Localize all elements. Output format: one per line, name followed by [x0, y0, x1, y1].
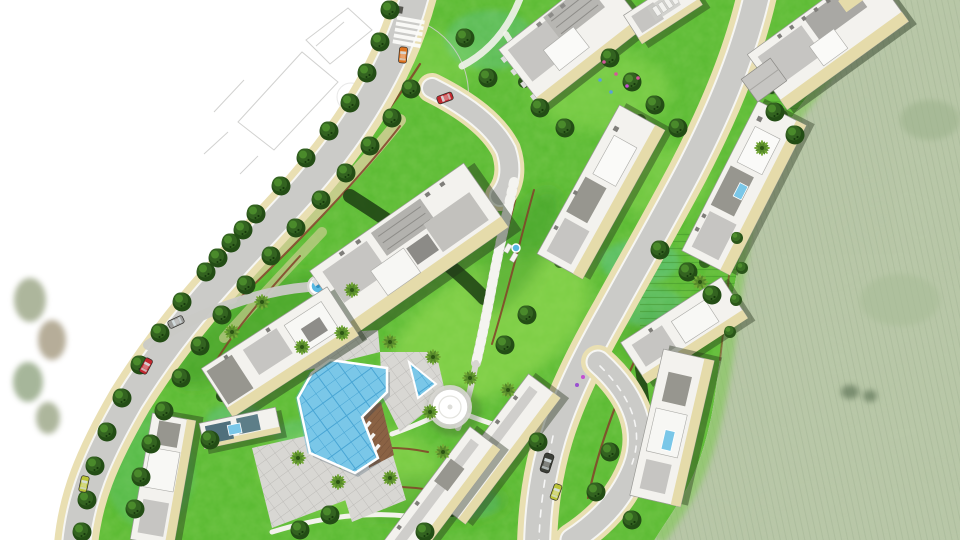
- tree-icon: [151, 324, 170, 343]
- tree-icon: [786, 126, 805, 145]
- tree-icon: [518, 306, 537, 325]
- tree-icon: [496, 336, 515, 355]
- tree-icon: [234, 221, 253, 240]
- tree-icon: [113, 389, 132, 408]
- tree-icon: [479, 69, 498, 88]
- tree-icon: [213, 306, 232, 325]
- tree-icon: [272, 177, 291, 196]
- tree-icon: [321, 506, 340, 525]
- tree-icon: [297, 149, 316, 168]
- tree-icon: [262, 247, 281, 266]
- site-plan-svg: [0, 0, 960, 540]
- tree-icon: [191, 337, 210, 356]
- tree-icon: [601, 49, 620, 68]
- tree-icon: [601, 443, 620, 462]
- tree-icon: [371, 33, 390, 52]
- tree-icon: [291, 521, 310, 540]
- tree-icon: [341, 94, 360, 113]
- tree-icon: [587, 483, 606, 502]
- tree-icon: [98, 423, 117, 442]
- car-orange: [398, 47, 407, 64]
- tree-icon: [320, 122, 339, 141]
- tree-icon: [132, 468, 151, 487]
- tree-icon: [201, 431, 220, 450]
- tree-icon: [78, 491, 97, 510]
- tree-icon: [337, 164, 356, 183]
- tree-icon: [703, 286, 722, 305]
- tree-icon: [126, 500, 145, 519]
- tree-icon: [358, 64, 377, 83]
- tree-icon: [287, 219, 306, 238]
- tree-icon: [679, 263, 698, 282]
- tree-icon: [456, 29, 475, 48]
- site-plan-canvas: [0, 0, 960, 540]
- tree-icon: [247, 205, 266, 224]
- tree-icon: [381, 1, 400, 20]
- tree-icon: [209, 249, 228, 268]
- tree-icon: [172, 369, 191, 388]
- tree-icon: [142, 435, 161, 454]
- tree-icon: [361, 137, 380, 156]
- tree-icon: [646, 96, 665, 115]
- tree-icon: [86, 457, 105, 476]
- tree-icon: [651, 241, 670, 260]
- tree-icon: [623, 511, 642, 530]
- pond-on-path: [512, 244, 520, 252]
- tree-icon: [623, 73, 642, 92]
- tree-icon: [766, 103, 785, 122]
- tree-icon: [155, 402, 174, 421]
- tree-icon: [402, 80, 421, 99]
- tree-icon: [237, 276, 256, 295]
- tree-icon: [173, 293, 192, 312]
- tree-icon: [531, 99, 550, 118]
- tree-icon: [312, 191, 331, 210]
- tree-icon: [556, 119, 575, 138]
- tree-icon: [383, 109, 402, 128]
- roof-pool: [227, 423, 242, 435]
- tree-icon: [669, 119, 688, 138]
- tree-icon: [529, 433, 548, 452]
